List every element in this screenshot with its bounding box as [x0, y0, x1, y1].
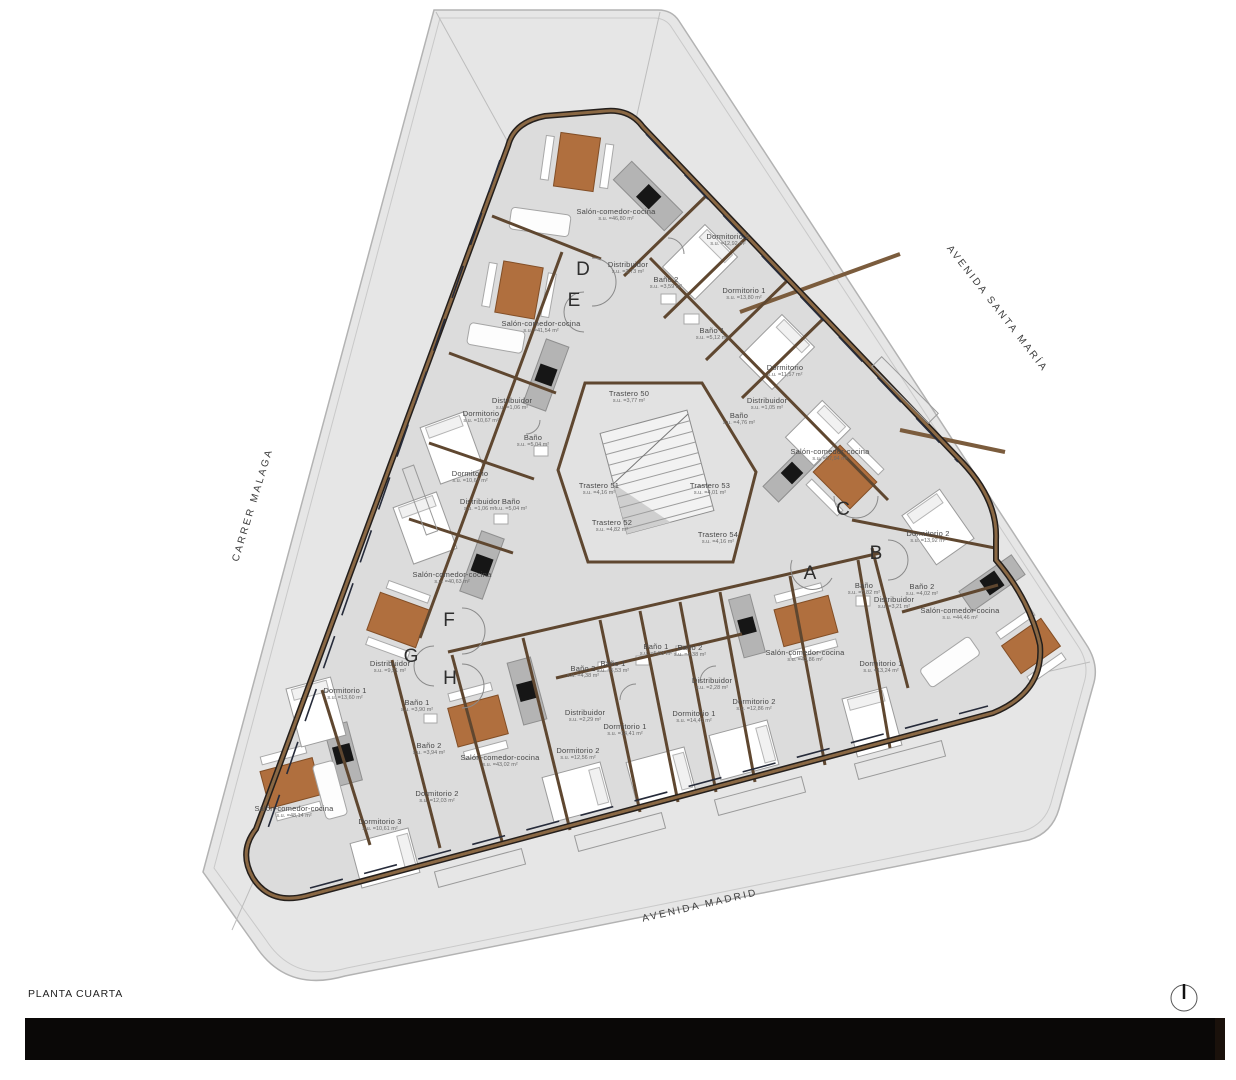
footer-bar — [25, 1018, 1225, 1060]
plan-title: PLANTA CUARTA — [28, 988, 123, 1000]
floor-plan-drawing — [0, 0, 1236, 1080]
floor-plan-sheet: Salón-comedor-cocinas.u. =46,80 m²Dormit… — [0, 0, 1236, 1080]
north-arrow-icon — [1166, 978, 1202, 1018]
